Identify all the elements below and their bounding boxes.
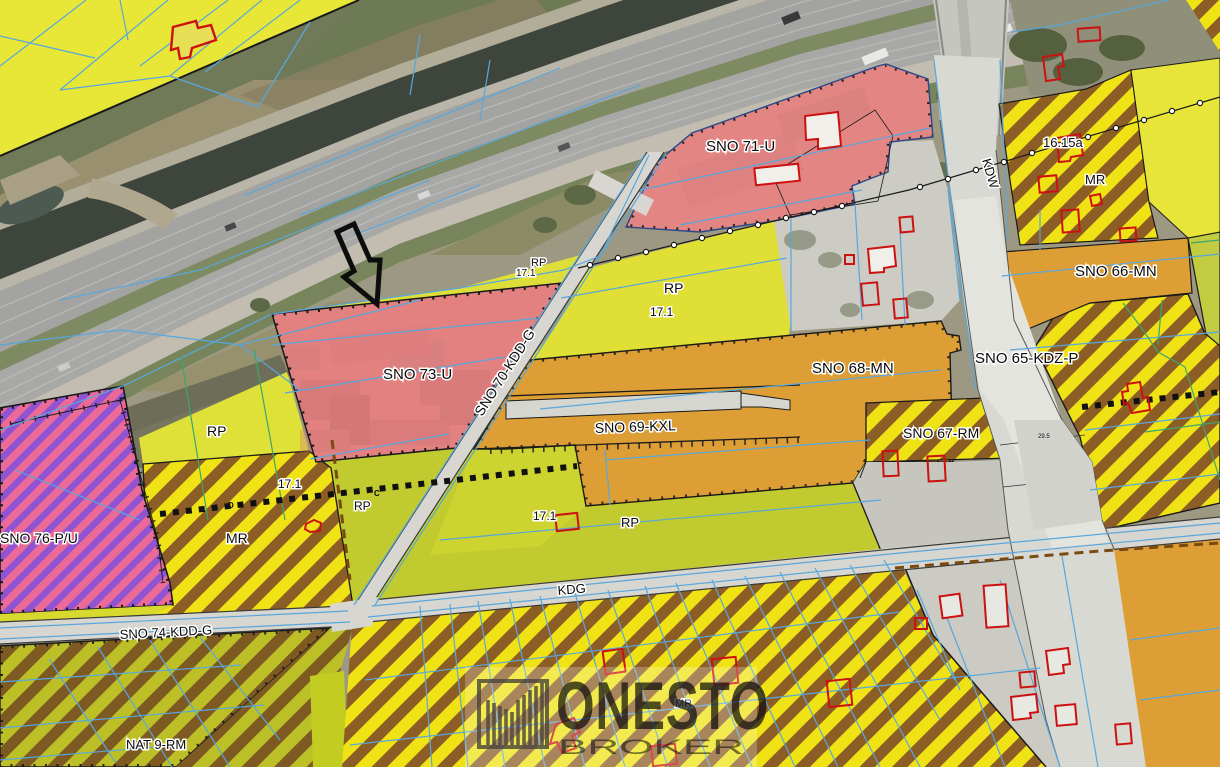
svg-text:BROKER: BROKER [558,736,744,759]
svg-text:SNO 73-U: SNO 73-U [383,366,452,383]
svg-text:17.1: 17.1 [533,509,557,523]
svg-text:C: C [374,489,380,498]
svg-text:17.1: 17.1 [278,477,302,491]
svg-text:SNO 68-MN: SNO 68-MN [812,360,894,377]
svg-text:SNO 66-MN: SNO 66-MN [1075,263,1157,280]
svg-text:17.1: 17.1 [516,268,536,279]
svg-text:16.15a: 16.15a [1043,135,1084,150]
svg-text:SNO 76-P/U: SNO 76-P/U [0,530,78,546]
svg-text:NAT 9-RM: NAT 9-RM [126,737,186,752]
svg-text:SNO 69-KXL: SNO 69-KXL [595,417,677,436]
svg-text:SNO 65-KDZ-P: SNO 65-KDZ-P [975,350,1078,367]
svg-text:SNO 71-U: SNO 71-U [706,138,775,155]
svg-text:17.1: 17.1 [650,305,674,319]
svg-text:ONESTO: ONESTO [556,667,769,744]
svg-text:29.5: 29.5 [1038,434,1050,440]
svg-text:RP: RP [664,280,683,296]
svg-text:MR: MR [1085,172,1105,187]
svg-text:RP: RP [354,499,371,513]
svg-text:MR: MR [226,530,248,546]
svg-text:SNO 67-RM: SNO 67-RM [903,425,979,441]
svg-text:RP: RP [207,423,226,439]
svg-text:KDG: KDG [557,581,586,598]
svg-text:D: D [228,501,234,510]
svg-text:RP: RP [621,515,639,530]
